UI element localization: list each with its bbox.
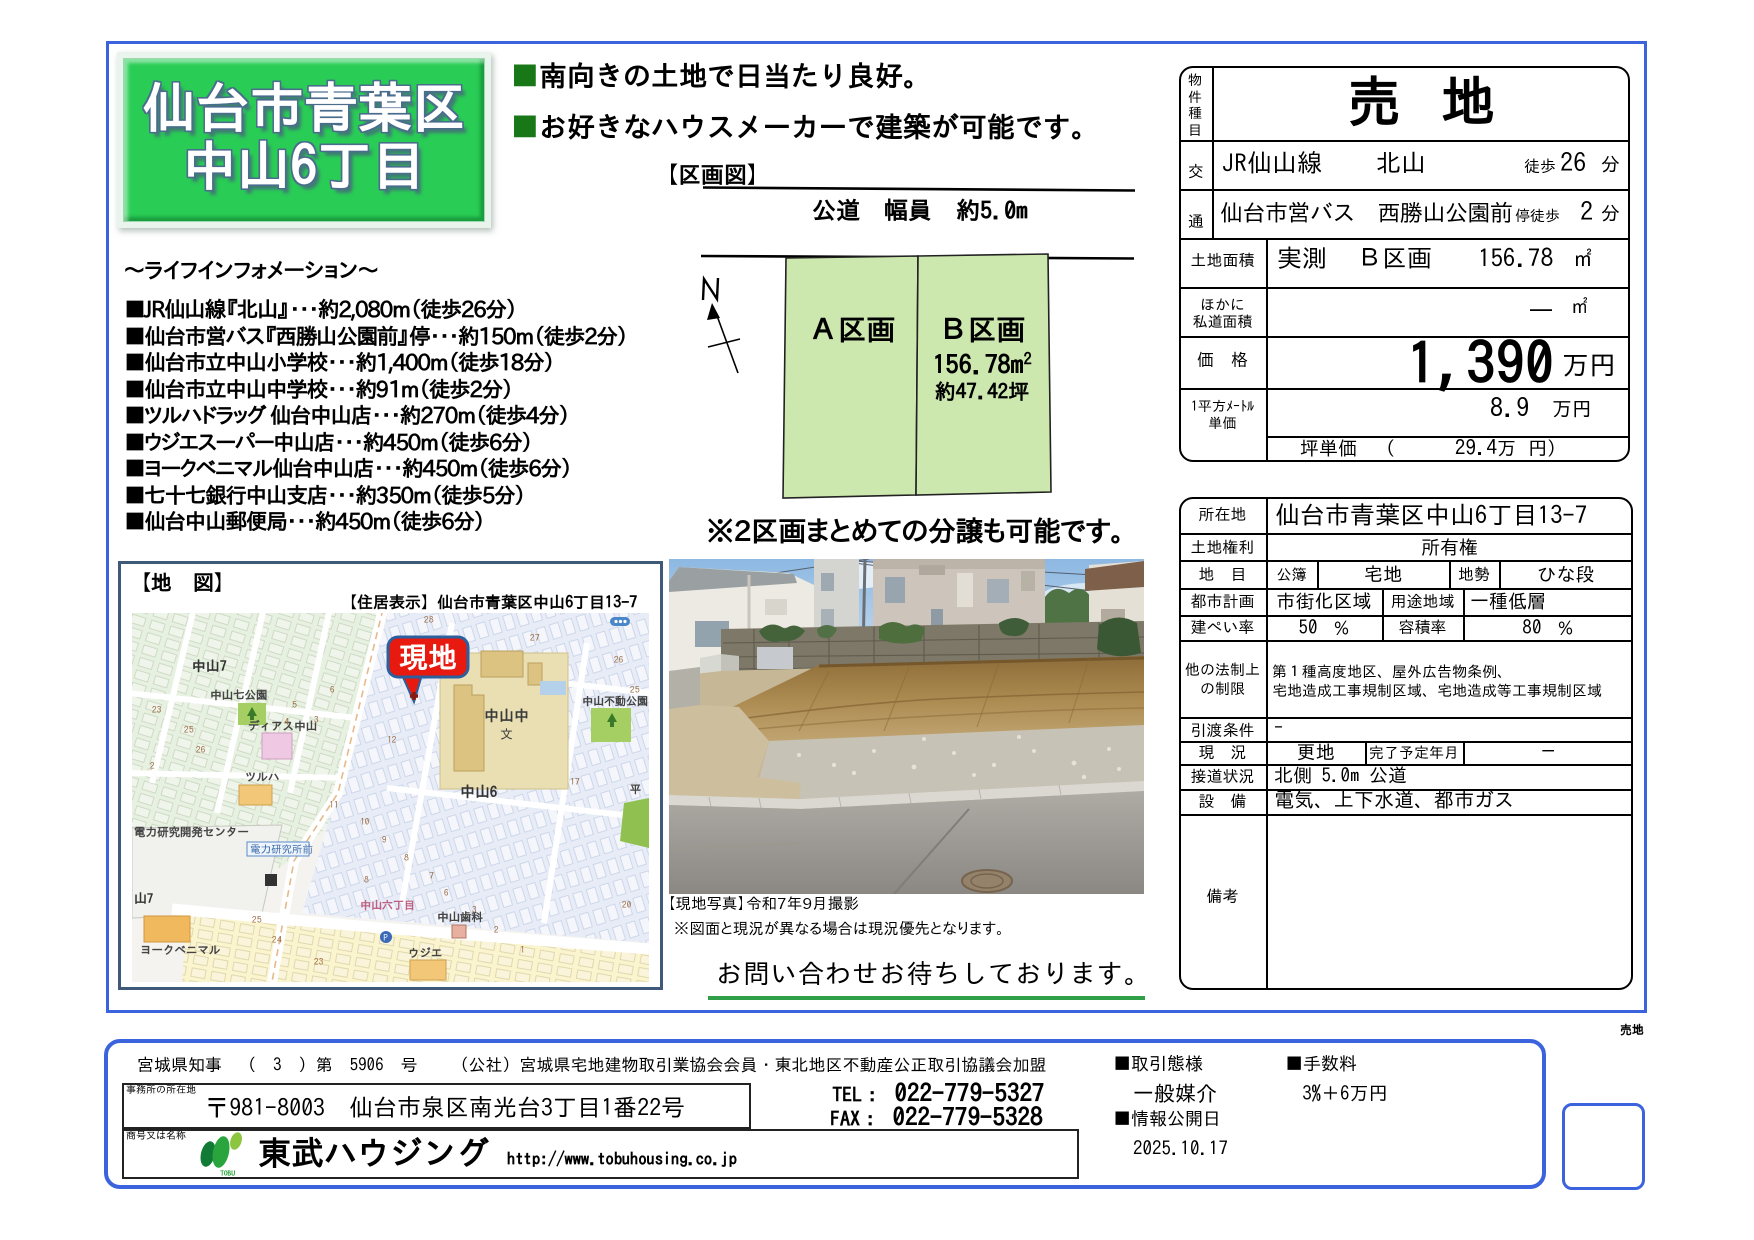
svg-text:※2区画まとめての分譲も可能です。: ※2区画まとめての分譲も可能です。: [706, 516, 1123, 545]
svg-text:23: 23: [314, 958, 324, 967]
svg-text:中山中: 中山中: [484, 708, 529, 723]
svg-text:文: 文: [500, 728, 513, 741]
svg-text:2: 2: [494, 926, 499, 935]
svg-text:10: 10: [360, 818, 370, 827]
svg-text:8: 8: [404, 854, 409, 863]
svg-text:27: 27: [530, 634, 540, 643]
svg-text:中山不動公園: 中山不動公園: [582, 695, 648, 707]
svg-text:6: 6: [330, 686, 335, 695]
svg-text:23: 23: [152, 706, 162, 715]
svg-text:9: 9: [382, 836, 387, 845]
svg-text:山7: 山7: [134, 891, 154, 905]
svg-text:電力研究所前: 電力研究所前: [250, 844, 313, 855]
svg-text:5: 5: [292, 701, 297, 710]
svg-text:TOBU: TOBU: [219, 1169, 235, 1177]
svg-text:12: 12: [387, 736, 397, 745]
svg-text:中山7: 中山7: [192, 659, 228, 673]
svg-text:25: 25: [252, 916, 262, 925]
svg-text:ディアス中山: ディアス中山: [248, 720, 317, 732]
svg-text:4: 4: [284, 718, 289, 727]
svg-text:26: 26: [196, 746, 206, 755]
svg-text:公道 幅員 約5.0m: 公道 幅員 約5.0m: [812, 198, 1028, 222]
svg-text:2: 2: [150, 762, 155, 771]
svg-text:Ａ区画: Ａ区画: [809, 315, 896, 344]
svg-text:中山6: 中山6: [460, 784, 498, 799]
svg-text:Ｂ区画: Ｂ区画: [939, 315, 1026, 344]
svg-text:11: 11: [329, 801, 339, 810]
svg-text:約47.42坪: 約47.42坪: [935, 381, 1030, 402]
svg-text:中山七公園: 中山七公園: [210, 689, 268, 701]
svg-text:7: 7: [429, 872, 434, 881]
svg-text:平: 平: [630, 783, 642, 795]
svg-text:ツルハ: ツルハ: [245, 772, 280, 783]
svg-text:156.78m2: 156.78m2: [933, 351, 1032, 378]
svg-text:6: 6: [444, 889, 449, 898]
svg-text:3: 3: [314, 716, 319, 725]
svg-text:電力研究開発センター: 電力研究開発センター: [134, 826, 249, 838]
svg-text:現地: 現地: [399, 643, 457, 672]
svg-text:28: 28: [424, 616, 434, 625]
svg-text:1: 1: [520, 946, 525, 955]
svg-text:3: 3: [472, 906, 477, 915]
svg-text:17: 17: [570, 778, 580, 787]
svg-text:26: 26: [614, 656, 624, 665]
svg-text:ヨークベニマル: ヨークベニマル: [140, 944, 221, 956]
svg-text:24: 24: [272, 936, 282, 945]
svg-text:8: 8: [364, 876, 369, 885]
svg-text:25: 25: [630, 686, 640, 695]
svg-text:P: P: [383, 934, 388, 943]
svg-text:20: 20: [622, 901, 632, 910]
svg-text:25: 25: [184, 726, 194, 735]
svg-text:中山六丁目: 中山六丁目: [360, 899, 415, 911]
svg-text:ウジエ: ウジエ: [408, 947, 443, 959]
